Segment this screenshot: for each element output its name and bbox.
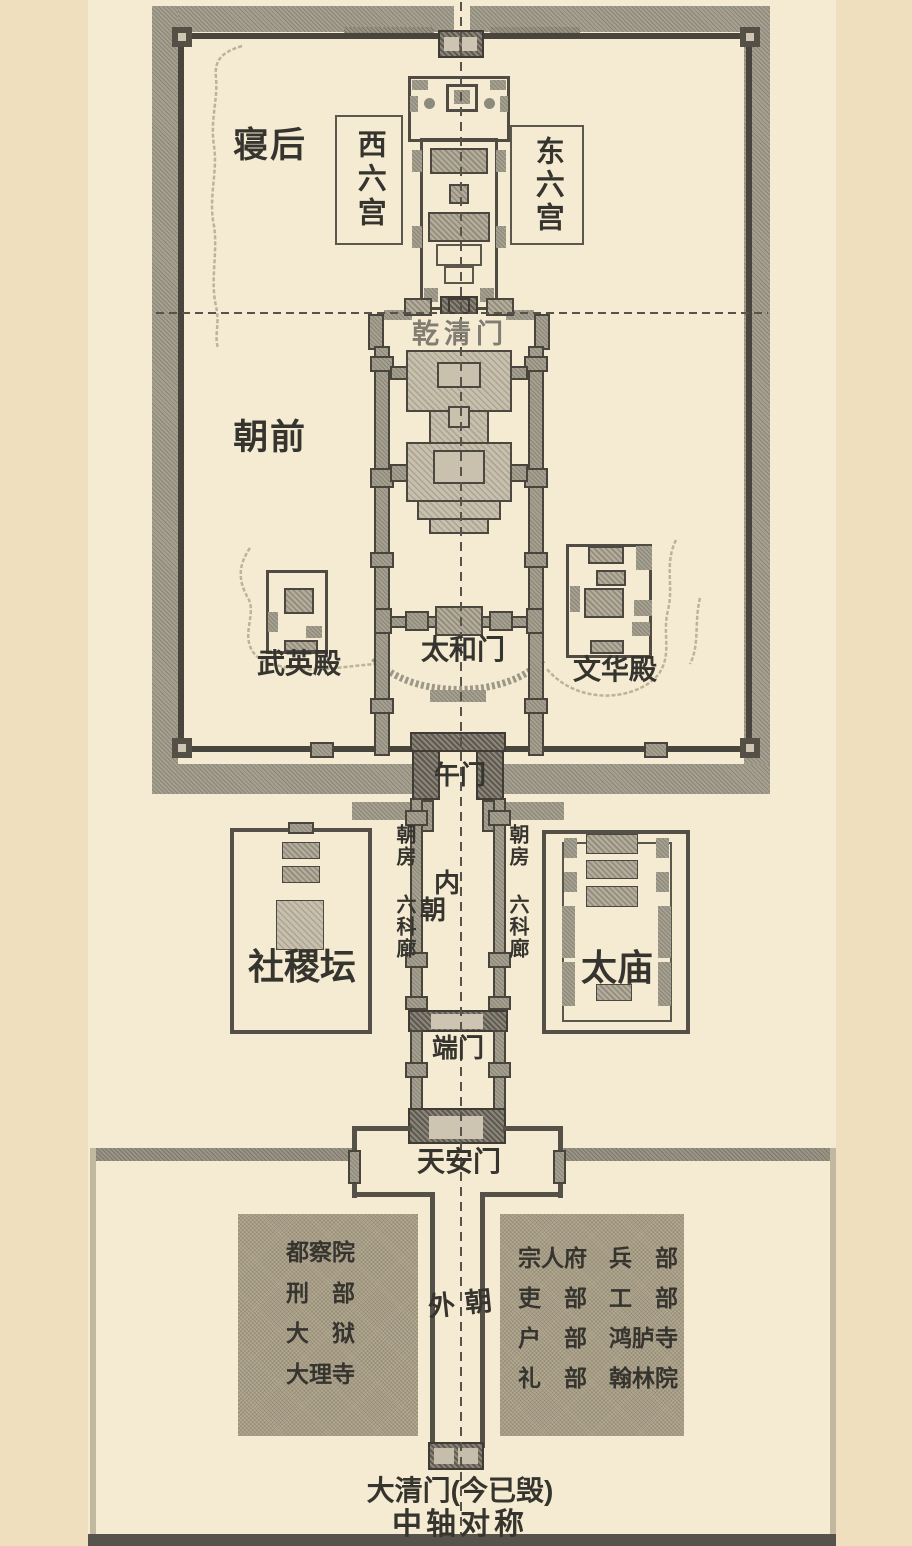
taimiao-building — [586, 834, 638, 854]
north-gate-opening — [462, 37, 477, 51]
shejitan-building — [282, 842, 320, 859]
imperial-city-wall-west — [92, 1148, 354, 1161]
garden-tree — [424, 98, 435, 109]
corner-turret-ne — [740, 27, 760, 47]
shejitan-altar — [276, 900, 324, 950]
wenhua-hall-building — [584, 588, 624, 618]
corridor-label-chaofang-west: 朝房 — [390, 824, 414, 876]
corridor-wall-east — [528, 346, 544, 756]
river-bridge — [430, 690, 486, 702]
hall-label-wenhuadian: 文华殿 — [564, 654, 666, 686]
wuying-hall-building — [284, 588, 314, 614]
taihemen-end-node — [374, 608, 392, 634]
garden-pavilion — [454, 90, 470, 104]
ministry-item: 鸿胪寺 — [609, 1326, 678, 1350]
north-gate-opening — [444, 37, 459, 51]
region-label-front-court: 前朝 — [258, 418, 302, 538]
ministry-item: 都察院 — [286, 1240, 398, 1264]
tiananmen-opening — [429, 1116, 483, 1139]
jiaotai-hall — [449, 184, 469, 204]
garden-tree — [484, 98, 495, 109]
ministries-list-east: 宗人府 兵 部 吏 部 工 部 户 部 鸿胪寺 礼 部 翰林院 — [518, 1246, 678, 1390]
taimiao-side-tab — [564, 872, 577, 892]
west-six-palaces-box: 西六宫 — [335, 115, 403, 245]
corridor-node — [524, 552, 548, 568]
ramp-band — [506, 802, 564, 820]
garden-side-tab — [500, 96, 508, 112]
shejitan-building — [282, 866, 320, 883]
garden-corner-tab — [412, 80, 428, 90]
corner-turret-nw — [172, 27, 192, 47]
taihemen-end-node — [526, 608, 544, 634]
corridor-label-liukelang-east: 六科廊 — [503, 894, 527, 966]
ministry-item: 宗人府 — [518, 1246, 587, 1270]
corridor-node — [370, 552, 394, 568]
gate-label-taihemen: 太和门 — [418, 634, 508, 666]
daqingmen-opening — [458, 1448, 478, 1464]
rear-step-outline — [436, 244, 482, 266]
wumen-gate-bar — [410, 732, 506, 752]
corridor-node — [524, 698, 548, 714]
changan-gate-west — [348, 1150, 361, 1184]
taihe-hall — [437, 362, 481, 388]
side-tab — [412, 226, 422, 248]
baohe-hall — [433, 450, 485, 484]
rear-step-outline — [444, 266, 474, 284]
temple-label-taimiao: 太庙 — [572, 946, 662, 990]
side-tab — [496, 226, 506, 248]
corridor-bump — [488, 1062, 511, 1078]
garden-corner-tab — [490, 80, 506, 90]
daqingmen-opening — [434, 1448, 454, 1464]
gate-label-wumen: 午门 — [430, 760, 490, 792]
taihemen-gate — [435, 606, 483, 636]
ministry-item: 吏 部 — [518, 1286, 587, 1310]
shejitan-gate-tab — [288, 822, 314, 834]
ministry-item: 礼 部 — [518, 1366, 587, 1390]
imperial-city-wall-edge — [830, 1148, 836, 1538]
wuying-hall-building — [268, 612, 278, 632]
ministries-list-west: 都察院 刑 部 大 狱 大理寺 — [286, 1240, 398, 1386]
wenhua-hall-building — [588, 546, 624, 564]
wenhua-hall-building — [632, 622, 650, 636]
ministry-item: 翰林院 — [609, 1366, 678, 1390]
wuying-hall-building — [306, 626, 322, 638]
ministry-item: 大 狱 — [286, 1321, 398, 1345]
corridor-node — [370, 698, 394, 714]
changan-gate-east — [553, 1150, 566, 1184]
wenhua-hall-building — [636, 546, 652, 570]
taimiao-building — [586, 860, 638, 879]
corridor-wall-west — [374, 346, 390, 756]
enclosure-wall — [503, 1126, 563, 1131]
moat-wall-bottom-right — [504, 764, 770, 794]
imperial-city-wall-edge — [90, 1148, 96, 1538]
imperial-city-wall-east — [560, 1148, 834, 1161]
taimiao-side-tab — [564, 838, 577, 858]
enclosure-wall — [481, 1192, 563, 1197]
corner-turret-se — [740, 738, 760, 758]
taihemen-flank — [405, 611, 429, 631]
kunning-hall — [428, 212, 490, 242]
east-six-palaces-label: 东六宫 — [532, 136, 562, 235]
taimiao-building — [586, 886, 638, 907]
west-six-palaces-label: 西六宫 — [354, 129, 384, 231]
gate-label-duanmen: 端门 — [426, 1034, 490, 1064]
corridor-label-liukelang-west: 六科廊 — [390, 894, 414, 966]
taimiao-side-tab — [656, 872, 669, 892]
ministry-item: 户 部 — [518, 1326, 587, 1350]
enclosure-wall — [352, 1126, 412, 1131]
enclosure-wall — [352, 1192, 434, 1197]
ministry-item: 刑 部 — [286, 1281, 398, 1305]
ministry-row: 礼 部 翰林院 — [518, 1366, 678, 1390]
moat-wall-bottom-left — [152, 764, 414, 794]
taihemen-flank — [489, 611, 513, 631]
terrace-step — [417, 500, 501, 520]
duanmen-opening — [431, 1014, 483, 1029]
taimiao-side-tab — [656, 838, 669, 858]
corridor-bump — [488, 996, 511, 1010]
gate-label-daqingmen: 大清门(今已毁) — [336, 1474, 584, 1508]
east-flower-gate — [644, 742, 668, 758]
ministry-row: 户 部 鸿胪寺 — [518, 1326, 678, 1350]
ministry-item: 兵 部 — [609, 1246, 678, 1270]
ministry-row: 吏 部 工 部 — [518, 1286, 678, 1310]
ministry-row: 宗人府 兵 部 — [518, 1246, 678, 1270]
ramp-band — [352, 802, 410, 820]
hall-label-wuyingdian: 武英殿 — [248, 648, 350, 680]
east-six-palaces-box: 东六宫 — [510, 125, 584, 245]
corridor-bump — [405, 996, 428, 1010]
corridor-label-chaofang-east: 朝房 — [503, 824, 527, 876]
gate-wing — [534, 314, 550, 350]
corner-turret-sw — [172, 738, 192, 758]
garden-side-tab — [410, 96, 418, 112]
west-flower-gate — [310, 742, 334, 758]
side-tab — [496, 150, 506, 172]
terrace-step — [429, 518, 489, 534]
wenhua-hall-building — [570, 586, 580, 612]
region-label-inner-court: 内朝 — [420, 882, 500, 912]
caption-axial-symmetry: 中轴对称 — [386, 1508, 534, 1542]
corridor-bump — [405, 1062, 428, 1078]
wenhua-hall-building — [590, 640, 624, 654]
zhonghe-hall — [448, 406, 470, 428]
qianqing-hall — [430, 148, 488, 174]
side-tab — [412, 150, 422, 172]
wenhua-hall-building — [634, 600, 652, 616]
moat-wall-left — [152, 6, 178, 794]
ministry-item: 大理寺 — [286, 1362, 398, 1386]
gate-label-tiananmen: 天安门 — [412, 1146, 506, 1178]
altar-label-shejitan: 社稷坛 — [236, 944, 368, 990]
wenhua-hall-building — [596, 570, 626, 586]
gate-label-qianqingmen: 乾清门 — [408, 316, 512, 346]
gate-wing — [368, 314, 384, 350]
ministry-item: 工 部 — [609, 1286, 678, 1310]
region-label-rear-court: 后寝 — [258, 126, 302, 246]
